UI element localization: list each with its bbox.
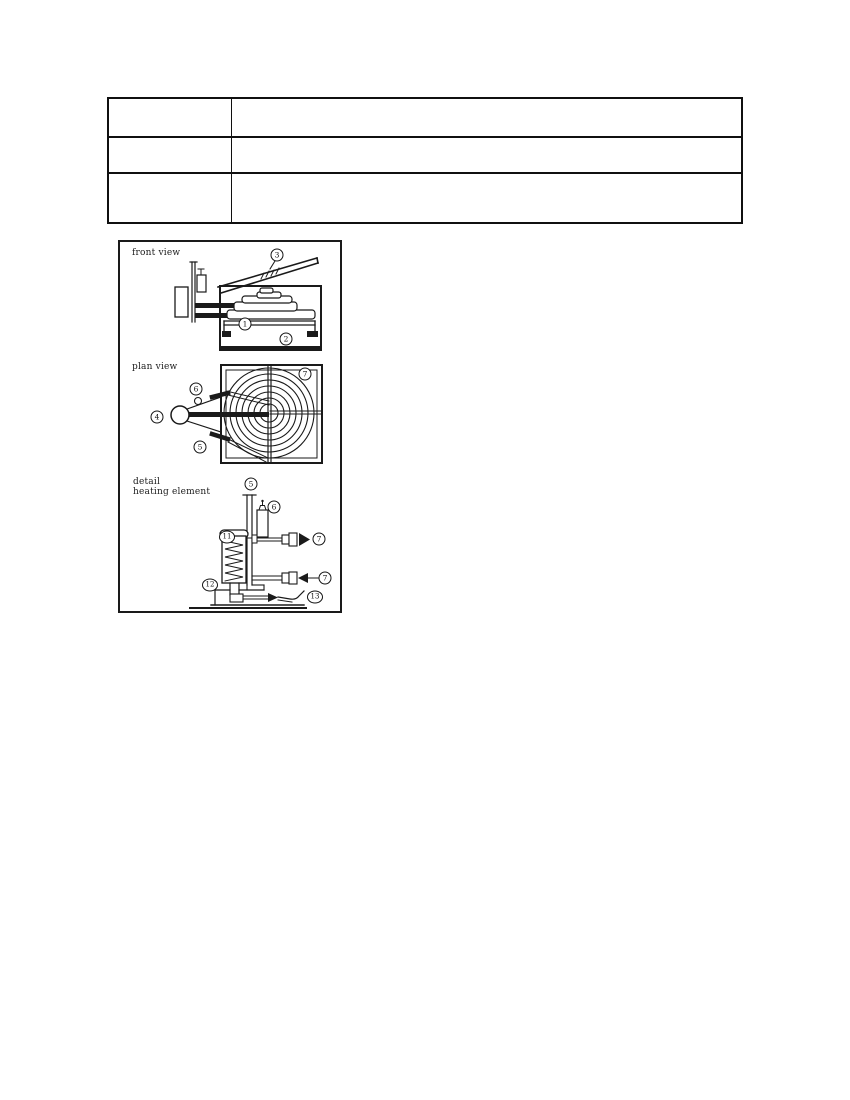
detail-label-line2: heating element bbox=[133, 487, 210, 497]
table-cell bbox=[231, 98, 742, 137]
callout-detail-outlet-7: 7 bbox=[313, 533, 326, 546]
front-view-label: front view bbox=[132, 248, 180, 258]
front-view-drawing bbox=[175, 258, 321, 350]
info-table bbox=[107, 97, 743, 224]
callout-plan-knob-4: 4 bbox=[151, 411, 164, 424]
callout-plan-upper-lead-6: 6 bbox=[190, 383, 203, 396]
diagram-artwork bbox=[118, 240, 342, 613]
detail-label-line1: detail bbox=[133, 477, 210, 487]
callout-detail-coil-11: 11 bbox=[219, 531, 235, 544]
callout-detail-inlet-7: 7 bbox=[319, 572, 332, 585]
callout-plan-lower-lead-5: 5 bbox=[194, 441, 207, 454]
figure-hot-plate-diagram: front view plan view detail heating elem… bbox=[118, 240, 342, 613]
callout-front-chute-3: 3 bbox=[271, 249, 284, 262]
table-row bbox=[108, 137, 742, 173]
document-page: front view plan view detail heating elem… bbox=[0, 0, 850, 1100]
table-cell bbox=[108, 98, 231, 137]
callout-detail-nozzle-13: 13 bbox=[307, 591, 323, 604]
table-cell bbox=[108, 173, 231, 223]
callout-front-plate-1: 1 bbox=[239, 318, 252, 331]
callout-plan-square-7: 7 bbox=[299, 368, 312, 381]
table-cell bbox=[231, 173, 742, 223]
callout-front-base-2: 2 bbox=[280, 333, 293, 346]
table-row bbox=[108, 98, 742, 137]
detail-view-label: detail heating element bbox=[133, 477, 210, 497]
table-row bbox=[108, 173, 742, 223]
callout-detail-cylinder-6: 6 bbox=[268, 501, 281, 514]
callout-detail-base-12: 12 bbox=[202, 579, 218, 592]
plan-view-label: plan view bbox=[132, 362, 177, 372]
table-cell bbox=[108, 137, 231, 173]
table-cell bbox=[231, 137, 742, 173]
callout-detail-tube-5: 5 bbox=[245, 478, 258, 491]
